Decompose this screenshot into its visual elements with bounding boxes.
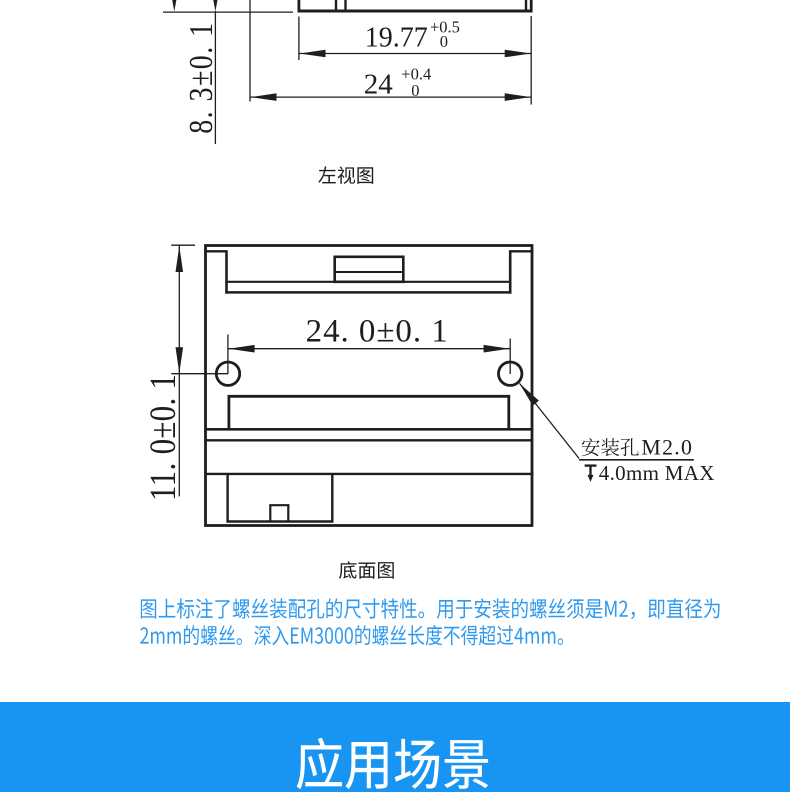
svg-text:M2.0: M2.0 xyxy=(641,436,693,460)
svg-text:0: 0 xyxy=(411,81,419,100)
svg-text:24: 24 xyxy=(364,68,394,100)
svg-text:24. 0±0. 1: 24. 0±0. 1 xyxy=(306,314,449,350)
svg-text:0: 0 xyxy=(440,32,448,51)
svg-text:8. 3±0. 1: 8. 3±0. 1 xyxy=(182,21,220,133)
svg-text:19.77: 19.77 xyxy=(365,23,428,54)
svg-text:11. 0±0. 1: 11. 0±0. 1 xyxy=(144,374,184,501)
svg-text:4.0mm MAX: 4.0mm MAX xyxy=(599,461,715,485)
